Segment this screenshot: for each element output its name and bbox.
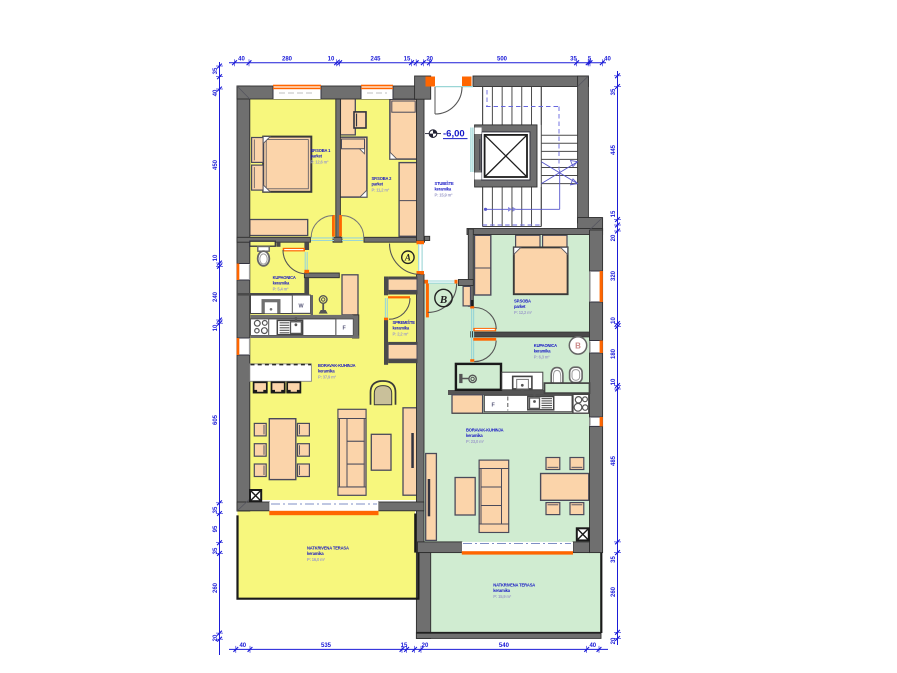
- svg-text:P: 11,2 m²: P: 11,2 m²: [372, 187, 390, 192]
- svg-text:40: 40: [604, 56, 611, 62]
- svg-text:445: 445: [611, 144, 617, 155]
- svg-text:20: 20: [426, 56, 433, 62]
- svg-text:35: 35: [570, 56, 577, 62]
- svg-text:BORAVAK-KUHINJA: BORAVAK-KUHINJA: [466, 428, 504, 433]
- svg-text:180: 180: [611, 348, 617, 359]
- svg-text:P: 15,9 m²: P: 15,9 m²: [493, 594, 512, 599]
- svg-text:260: 260: [611, 586, 617, 597]
- svg-text:keramika: keramika: [493, 588, 510, 593]
- svg-text:KUPAONICA: KUPAONICA: [534, 343, 557, 348]
- svg-text:320: 320: [611, 270, 617, 281]
- svg-text:P: 12,6 m²: P: 12,6 m²: [311, 159, 330, 164]
- svg-text:20: 20: [422, 643, 429, 649]
- svg-text:10: 10: [611, 378, 617, 385]
- svg-text:P: 15,9 m²: P: 15,9 m²: [435, 192, 454, 197]
- svg-text:-6,00: -6,00: [443, 129, 465, 140]
- svg-text:P: 23,0 m²: P: 23,0 m²: [466, 439, 485, 444]
- svg-text:450: 450: [213, 159, 219, 170]
- svg-text:10: 10: [611, 317, 617, 324]
- svg-text:P: 5,4 m²: P: 5,4 m²: [273, 286, 289, 291]
- svg-text:keramika: keramika: [466, 433, 483, 438]
- svg-text:SPREMIŠTE: SPREMIŠTE: [393, 320, 416, 325]
- svg-text:35: 35: [213, 547, 219, 554]
- svg-text:15: 15: [404, 56, 411, 62]
- svg-text:BORAVAK-KUHINJA: BORAVAK-KUHINJA: [318, 363, 356, 368]
- svg-text:A: A: [404, 253, 411, 263]
- svg-text:keramika: keramika: [435, 187, 452, 192]
- svg-text:P: 6,3 m²: P: 6,3 m²: [534, 354, 550, 359]
- svg-text:P: 37,9 m²: P: 37,9 m²: [318, 374, 337, 379]
- svg-text:P: 16,0 m²: P: 16,0 m²: [307, 557, 326, 562]
- svg-text:245: 245: [370, 56, 381, 62]
- svg-text:parket: parket: [514, 304, 526, 309]
- svg-text:95: 95: [213, 525, 219, 532]
- svg-text:keramika: keramika: [393, 326, 410, 331]
- svg-text:40: 40: [589, 643, 596, 649]
- svg-text:NATKRIVENA TERASA: NATKRIVENA TERASA: [493, 583, 535, 588]
- svg-text:35: 35: [213, 67, 219, 74]
- svg-text:35: 35: [611, 88, 617, 95]
- svg-text:35: 35: [213, 506, 219, 513]
- svg-text:280: 280: [282, 56, 293, 62]
- svg-text:SP.SOBA 1: SP.SOBA 1: [311, 148, 332, 153]
- svg-text:keramika: keramika: [273, 281, 290, 286]
- svg-text:keramika: keramika: [534, 349, 551, 354]
- svg-text:260: 260: [213, 582, 219, 593]
- svg-text:535: 535: [321, 643, 332, 649]
- svg-text:P: 2,2 m²: P: 2,2 m²: [393, 331, 409, 336]
- svg-text:B: B: [439, 294, 447, 306]
- svg-text:KUPAONICA: KUPAONICA: [273, 275, 296, 280]
- svg-text:parket: parket: [372, 182, 384, 187]
- svg-text:40: 40: [239, 643, 246, 649]
- svg-text:40: 40: [213, 89, 219, 96]
- svg-text:P: 12,2 m²: P: 12,2 m²: [514, 310, 533, 315]
- svg-text:15: 15: [611, 210, 617, 217]
- svg-text:NATKRIVENA TERASA: NATKRIVENA TERASA: [307, 546, 349, 551]
- svg-text:40: 40: [238, 56, 245, 62]
- svg-text:10: 10: [328, 56, 335, 62]
- svg-text:35: 35: [611, 556, 617, 563]
- svg-text:10: 10: [213, 254, 219, 261]
- svg-text:605: 605: [213, 414, 219, 425]
- svg-text:20: 20: [611, 234, 617, 241]
- svg-text:STUBIŠTE: STUBIŠTE: [435, 181, 454, 186]
- svg-text:20: 20: [213, 634, 219, 641]
- svg-text:SP.SOBA 2: SP.SOBA 2: [372, 176, 393, 181]
- svg-text:B: B: [575, 342, 581, 351]
- svg-text:240: 240: [213, 291, 219, 302]
- svg-text:keramika: keramika: [307, 551, 324, 556]
- svg-text:485: 485: [611, 455, 617, 466]
- svg-text:20: 20: [611, 637, 617, 644]
- svg-text:500: 500: [497, 56, 508, 62]
- svg-text:parket: parket: [311, 154, 323, 159]
- svg-text:10: 10: [213, 324, 219, 331]
- svg-text:15: 15: [401, 643, 408, 649]
- svg-text:540: 540: [499, 643, 510, 649]
- svg-text:SP.SOBA: SP.SOBA: [514, 299, 531, 304]
- svg-text:keramika: keramika: [318, 369, 335, 374]
